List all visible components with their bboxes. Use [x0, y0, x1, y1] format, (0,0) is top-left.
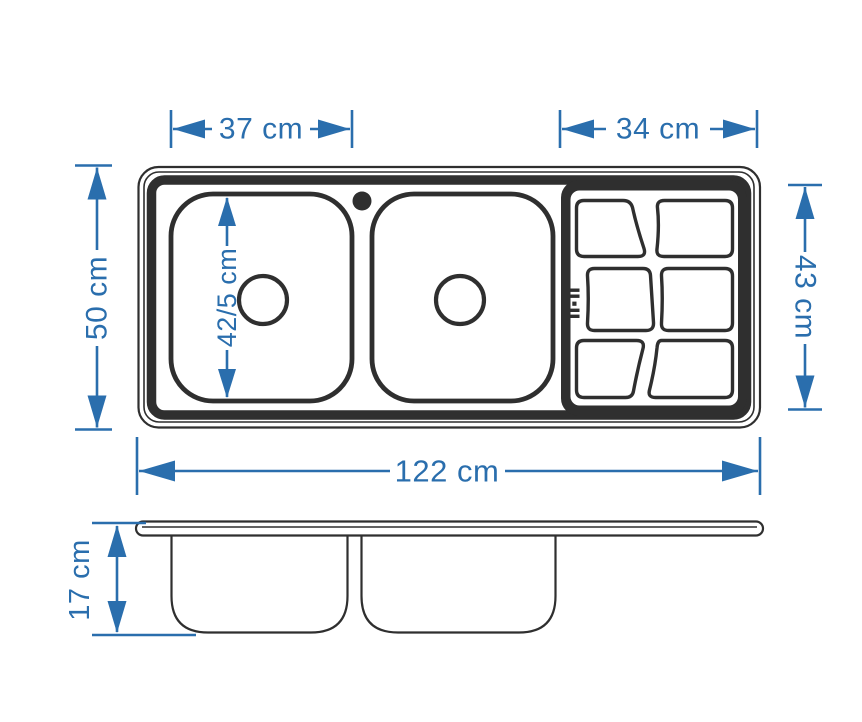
deck-profile [136, 522, 763, 536]
drainboard-panel-bottom-left [577, 341, 644, 398]
left-bowl-profile [172, 536, 348, 633]
drainboard-panel-top-left [577, 201, 645, 257]
dimension-total-length: 122 cm [137, 437, 760, 495]
faucet-hole [353, 192, 372, 211]
bowl-height-label: 17 cm [64, 539, 96, 620]
side-view [136, 522, 763, 633]
left-drain-hole [239, 276, 287, 324]
dimension-drainboard-depth: 43 cm [788, 185, 822, 410]
total-length-label: 122 cm [395, 454, 500, 489]
dimension-bowl-width: 37 cm [171, 110, 352, 148]
drainboard-panel-mid-right [661, 269, 732, 331]
drainboard-width-label: 34 cm [616, 113, 700, 146]
sink-dimension-diagram: 37 cm 34 cm 50 cm 43 cm 42/5 cm [0, 0, 862, 722]
diagram-canvas: 37 cm 34 cm 50 cm 43 cm 42/5 cm [0, 0, 862, 722]
drainboard-panel-mid-left [587, 269, 653, 331]
drainboard-panel-bottom-right [649, 341, 732, 398]
dimension-sink-depth: 50 cm [75, 166, 114, 430]
drainboard-panel-top-right [657, 201, 733, 257]
bowl-inner-length-label: 42/5 cm [212, 248, 242, 348]
sink-depth-label: 50 cm [81, 256, 114, 340]
right-bowl-profile [362, 536, 556, 633]
right-drain-hole [436, 276, 484, 324]
drainboard-depth-label: 43 cm [789, 255, 822, 339]
drainboard [561, 181, 747, 416]
bowl-width-label: 37 cm [219, 113, 303, 146]
dimension-drainboard-width: 34 cm [560, 110, 757, 148]
